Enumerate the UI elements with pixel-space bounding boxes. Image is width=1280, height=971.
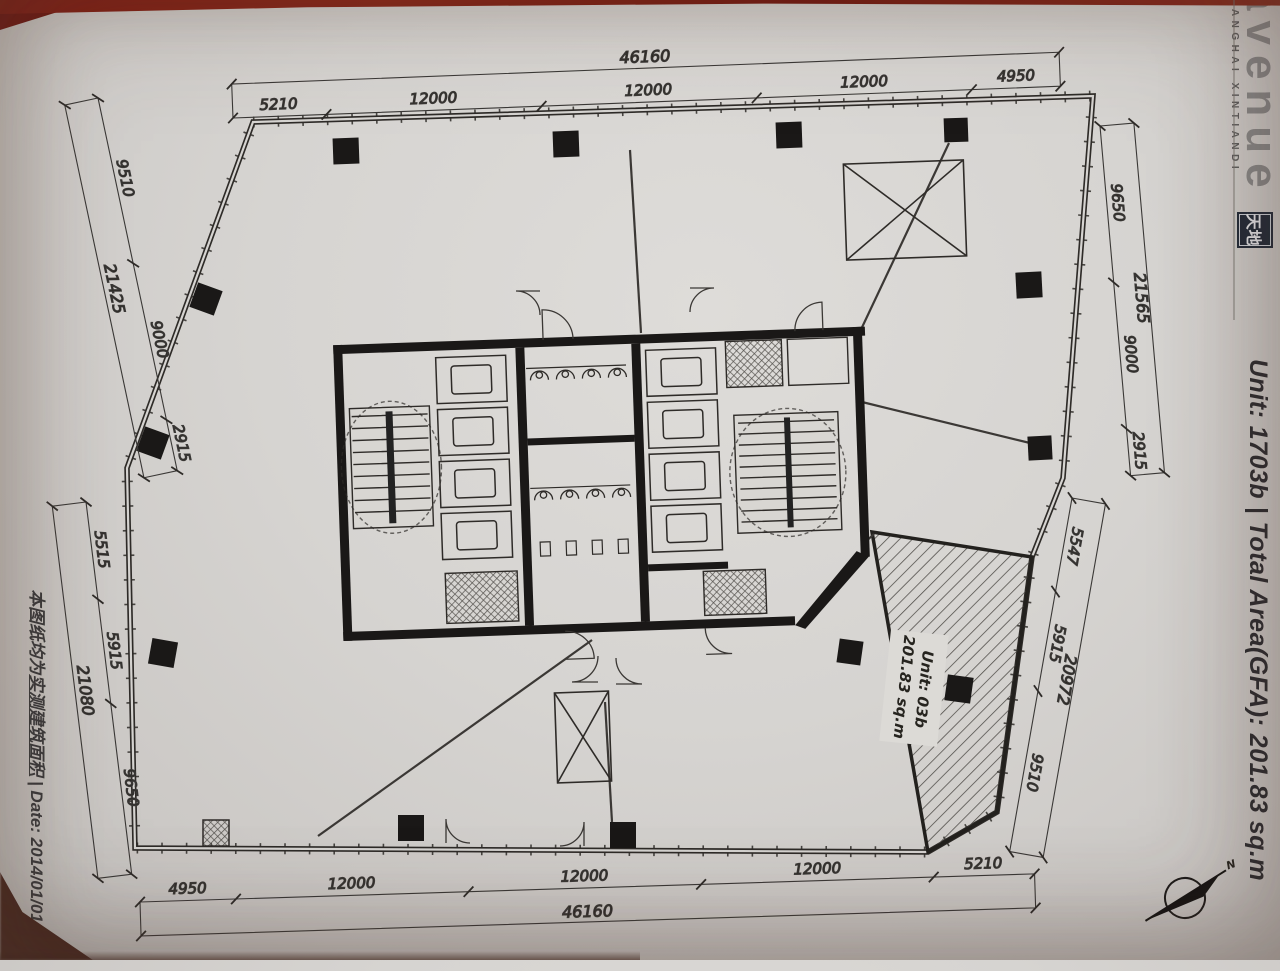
table-surface-edge-bottom (0, 951, 640, 960)
paper-crease (1233, 0, 1235, 320)
dim-label: 4950 (997, 66, 1036, 85)
dim-label: 12000 (624, 80, 672, 100)
unit-03b-label: Unit: 03b 201.83 sq.m (879, 629, 948, 746)
service-core (332, 299, 876, 667)
note-underlined: 实测建筑面积 (27, 674, 46, 776)
dim-label: 9650 (1107, 183, 1128, 223)
dim-total-label: 46160 (562, 901, 613, 922)
dim-total-label: 21565 (1130, 272, 1153, 324)
dim-label: 5210 (964, 854, 1003, 873)
stair-right (728, 406, 848, 538)
brand-wordmark: avenue SHANGHAI XINTIANDI (1229, 0, 1280, 198)
dim-label: 4950 (168, 879, 207, 898)
dim-label: 12000 (327, 874, 375, 893)
shaft-box-bottom (554, 691, 611, 783)
note-prefix: 本图纸均为 (27, 589, 46, 674)
dim-label: 9510 (112, 158, 138, 199)
brand-logo: avenue SHANGHAI XINTIANDI 天地 (1207, 0, 1280, 286)
dim-right-upper: 9650 9000 2915 21565 (1095, 118, 1170, 481)
brand-logo-text: avenue (1242, 0, 1280, 198)
elevator-bank-left (436, 355, 513, 559)
dim-total-label: 46160 (619, 46, 671, 67)
dim-label: 12000 (409, 88, 457, 108)
tiandi-seal-icon: 天地 (1237, 212, 1273, 248)
dim-label: 12000 (560, 866, 608, 885)
floorplan-photo: { "branding": { "logo_text": "avenue", "… (0, 0, 1280, 960)
dim-label: 2915 (169, 423, 195, 464)
floorplan-drawing: Unit: 03b 201.83 sq.m (0, 0, 1280, 960)
column-hatched (203, 820, 229, 846)
dim-label: 9000 (1120, 334, 1141, 374)
north-arrow-icon: N (1135, 857, 1247, 932)
note-date: | Date: 2014/01/01 (27, 776, 46, 923)
elevator-bank-right (646, 348, 723, 552)
drawing-note-caption: 本图纸均为实测建筑面积 | Date: 2014/01/01 (23, 541, 51, 971)
dim-label: 2915 (1129, 431, 1150, 471)
dim-label: 12000 (793, 859, 841, 878)
stair-left (339, 400, 444, 535)
shaft-box-top-right (843, 160, 966, 260)
dim-label: 12000 (840, 72, 888, 92)
dim-label: 5210 (259, 95, 298, 114)
restrooms (526, 365, 633, 556)
unit-area-caption: Unit: 1703b | Total Area(GFA): 201.83 sq… (1232, 340, 1272, 900)
dim-right-lower: 5547 5915 9510 20972 (1004, 492, 1111, 863)
dim-left-upper: 9510 9000 2915 21425 (59, 89, 197, 484)
dim-bottom: 4950 12000 12000 12000 5210 46160 (134, 853, 1040, 941)
dim-label: 9000 (147, 319, 173, 360)
